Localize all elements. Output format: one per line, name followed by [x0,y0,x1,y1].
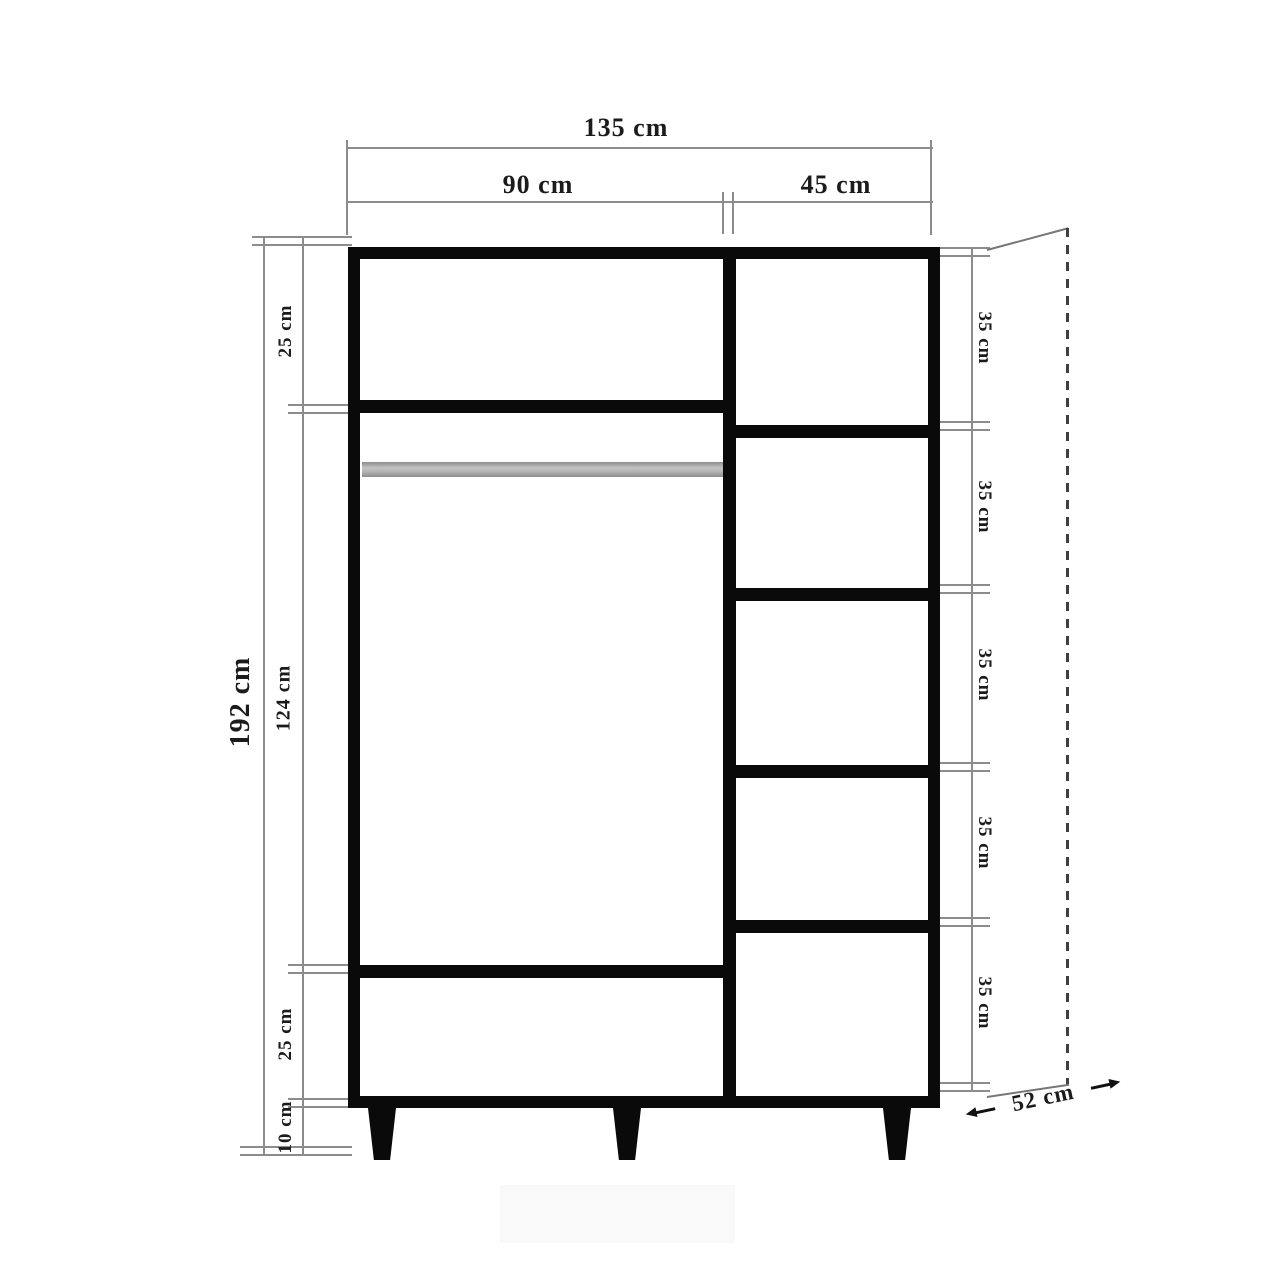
tick [938,925,990,927]
dim-label-width-total: 135 cm [584,113,669,143]
dim-label-leg-height: 10 cm [275,1100,297,1153]
depth-dashed-line [1066,228,1069,1085]
dim-label-width-left: 90 cm [503,170,574,200]
drawer-divider-4 [736,920,928,933]
dim-label-right-seg-2: 35 cm [973,480,995,533]
bottom-shelf [360,965,723,978]
hanging-rod [362,462,723,477]
tick [938,247,990,249]
dim-line-width-split [347,201,933,203]
split-tick [722,192,724,234]
wardrobe-leg-right [883,1108,911,1160]
dim-label-left-seg-bottom: 25 cm [275,1007,297,1060]
tick [938,429,990,431]
tick [288,404,352,406]
dim-label-right-seg-1: 35 cm [973,311,995,364]
depth-arrow-left-icon [975,1107,995,1114]
tick [938,584,990,586]
dim-label-right-seg-3: 35 cm [973,648,995,701]
dim-label-left-seg-top: 25 cm [275,304,297,357]
split-tick [732,192,734,234]
extension-line-top-left [346,140,348,235]
dim-line-left-segments [302,237,304,1155]
dim-label-height-total: 192 cm [225,657,257,748]
dim-label-depth: 52 cm [1009,1079,1076,1118]
tick [288,964,352,966]
wardrobe-leg-left [368,1108,396,1160]
tick [288,1106,352,1108]
wardrobe-dimension-diagram: 135 cm 90 cm 45 cm 192 cm 25 cm 124 cm 2… [0,0,1280,1280]
tick [938,1082,990,1084]
wardrobe-outline [348,247,940,1108]
faint-watermark-area [500,1185,735,1243]
dim-line-height-total [263,237,265,1155]
tick [938,592,990,594]
drawer-divider-3 [736,765,928,778]
tick [252,236,352,238]
tick [288,972,352,974]
tick [288,412,352,414]
drawer-divider-2 [736,588,928,601]
dim-label-left-seg-middle: 124 cm [273,665,296,732]
top-shelf [360,400,723,413]
dim-line-width-total [347,147,933,149]
tick [252,244,352,246]
center-divider [723,259,736,1096]
depth-dimension: 52 cm [971,1064,1114,1132]
tick [938,762,990,764]
depth-arrow-right-icon [1091,1082,1111,1089]
tick [288,1098,352,1100]
tick [240,1154,352,1156]
dim-label-right-seg-4: 35 cm [973,816,995,869]
tick [938,770,990,772]
tick [938,421,990,423]
extension-line-top-right [930,140,932,235]
tick [938,917,990,919]
dim-label-right-seg-5: 35 cm [973,976,995,1029]
tick [938,255,990,257]
drawer-divider-1 [736,425,928,438]
wardrobe-leg-middle [613,1108,641,1160]
depth-top-edge [987,227,1069,251]
dim-label-width-right: 45 cm [801,170,872,200]
